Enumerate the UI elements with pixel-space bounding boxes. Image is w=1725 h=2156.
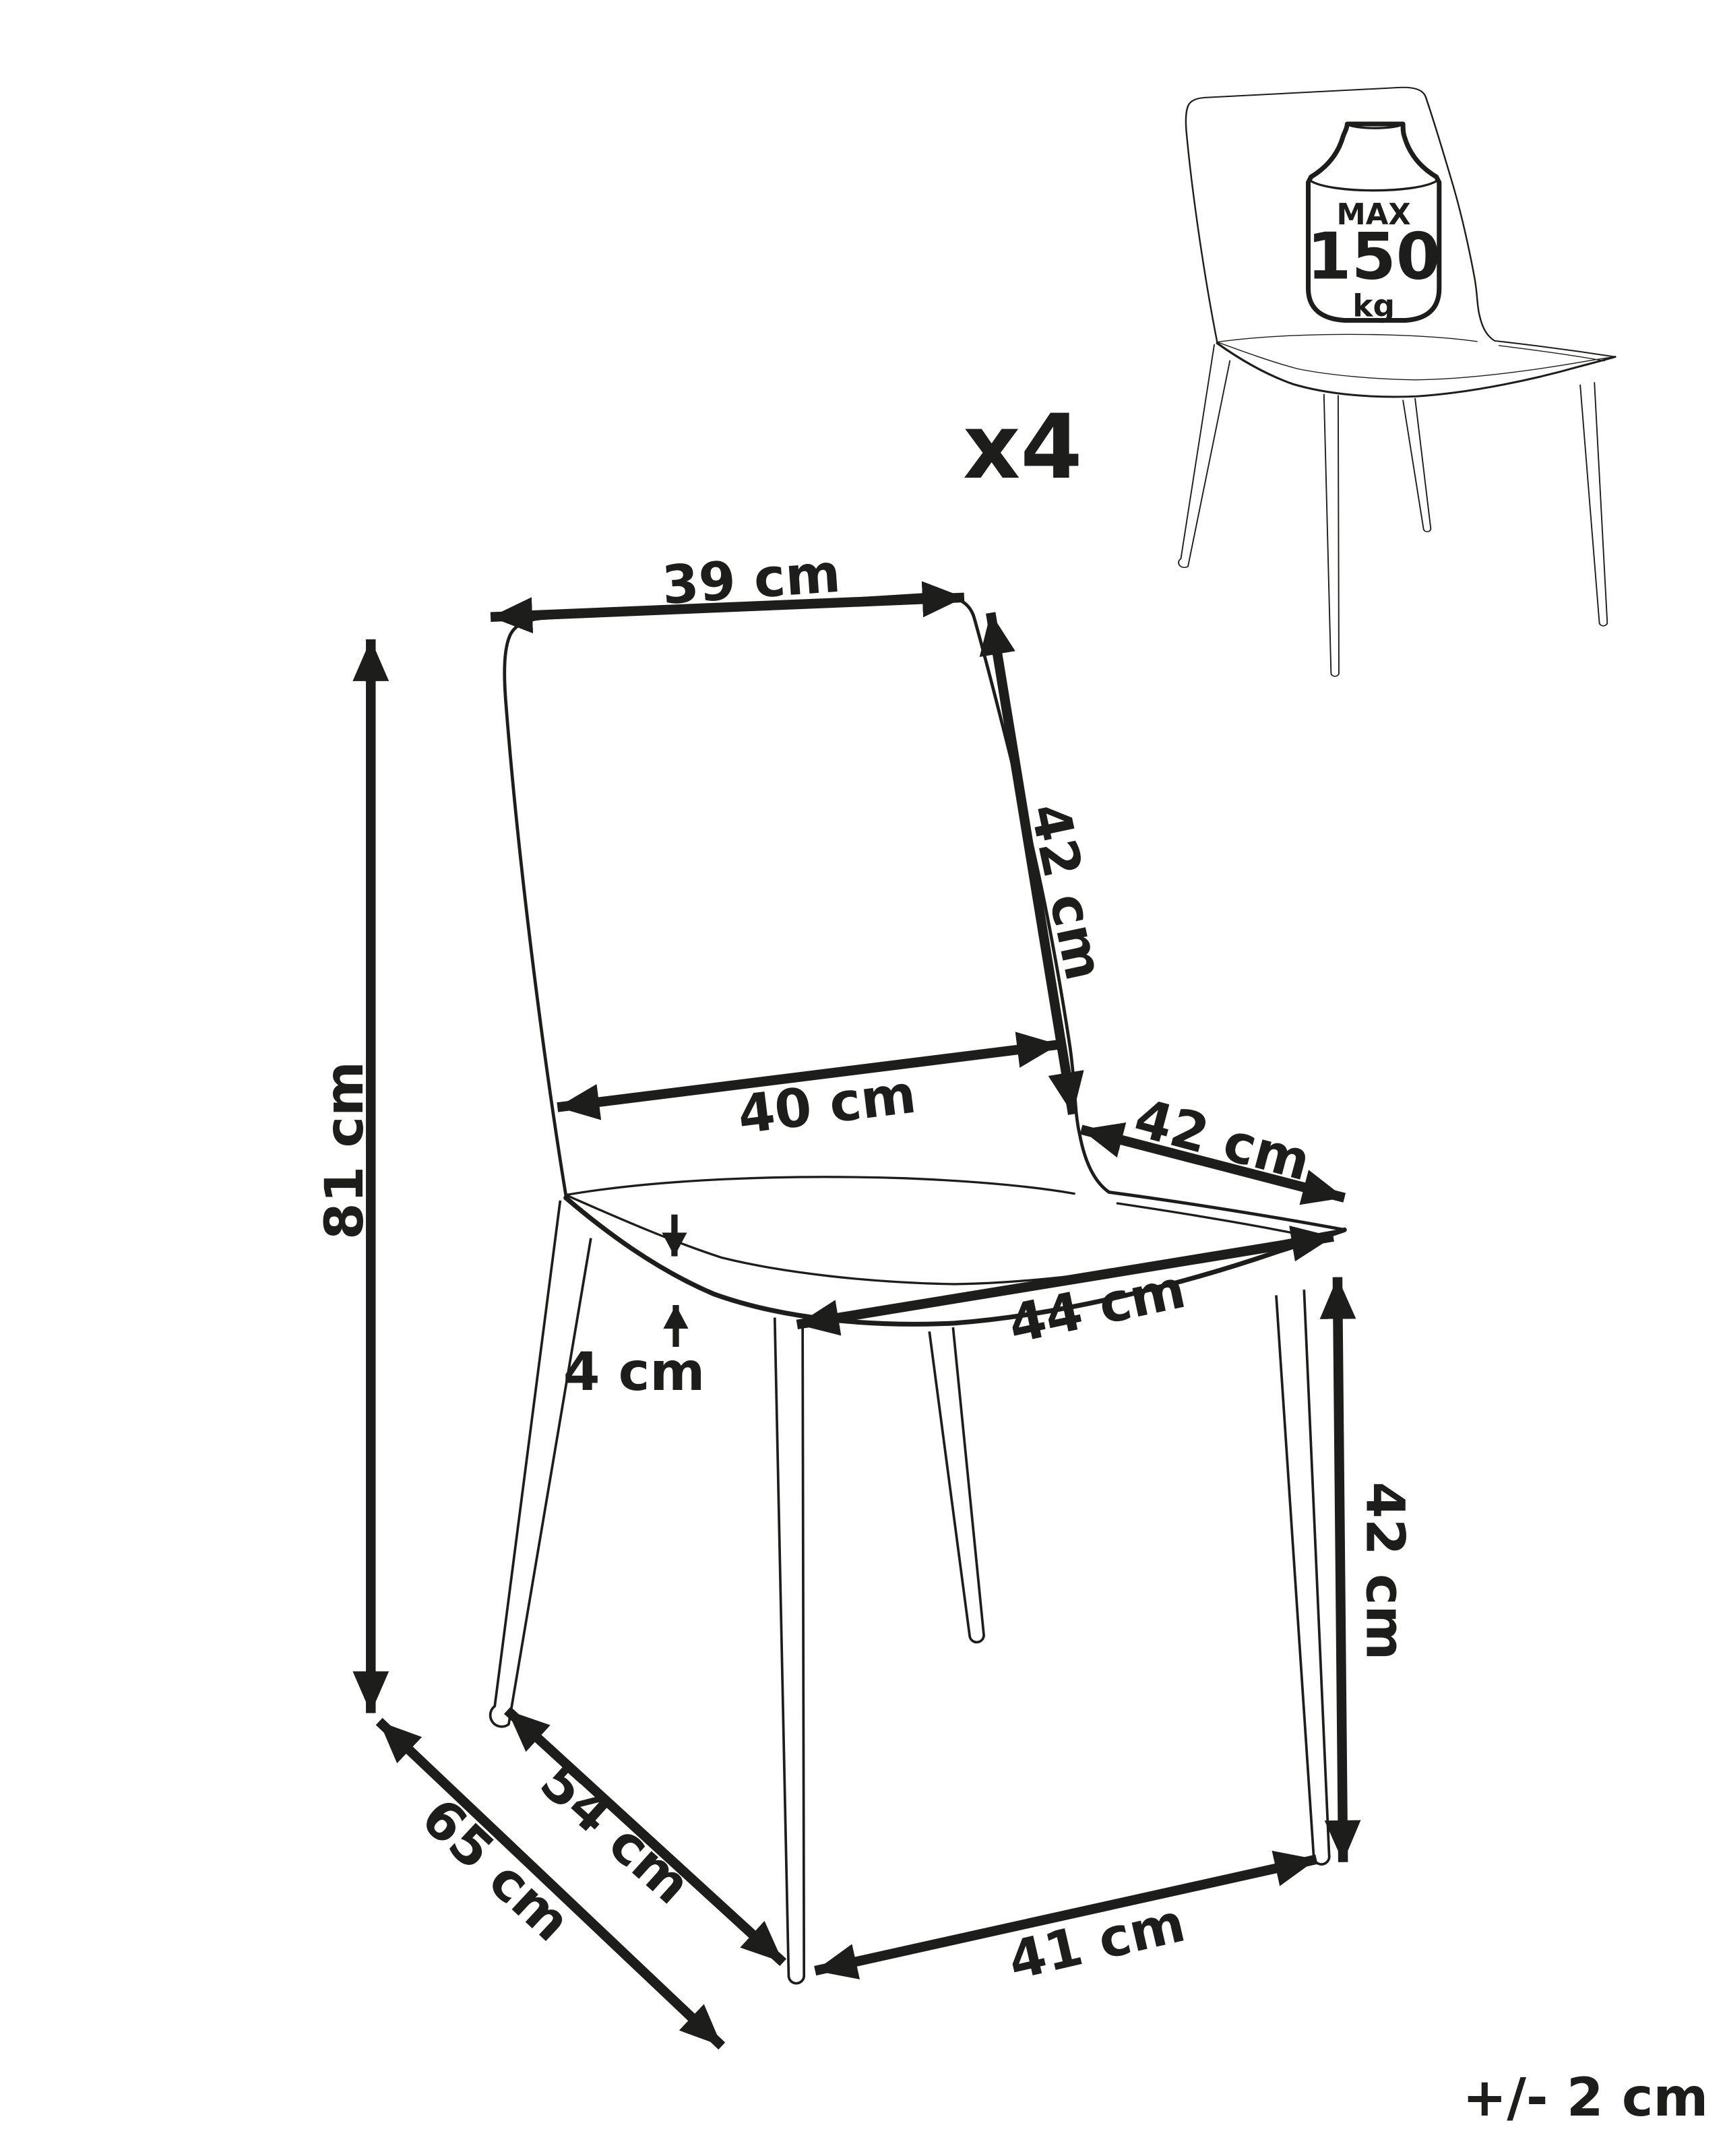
weight-limit-icon: MAX 150 kg (1307, 124, 1440, 323)
dim-label-seat-height: 42 cm (1354, 1482, 1416, 1660)
dim-label-backrest-bottom: 40 cm (734, 1063, 919, 1147)
dim-label-cushion-thickness: 4 cm (563, 1341, 705, 1403)
main-chair-drawing (491, 594, 1345, 1983)
dim-label-backrest-width: 39 cm (660, 542, 842, 616)
chair-dimension-diagram: MAX 150 kg x4 39 cm 42 cm (0, 0, 1725, 2156)
dim-arrow-seat-height (1338, 1277, 1343, 1862)
dim-label-seat-side-depth: 42 cm (1128, 1087, 1317, 1193)
diagram-page: MAX 150 kg x4 39 cm 42 cm (0, 0, 1725, 2156)
weight-value: 150 (1307, 220, 1440, 294)
quantity-label: x4 (963, 395, 1082, 499)
tolerance-note: +/- 2 cm (1462, 2066, 1708, 2128)
weight-unit: kg (1352, 288, 1395, 323)
dimension-labels: 39 cm 42 cm 40 cm 42 cm 44 cm 4 cm 81 cm… (313, 542, 1416, 1992)
dim-label-total-height: 81 cm (313, 1061, 375, 1240)
